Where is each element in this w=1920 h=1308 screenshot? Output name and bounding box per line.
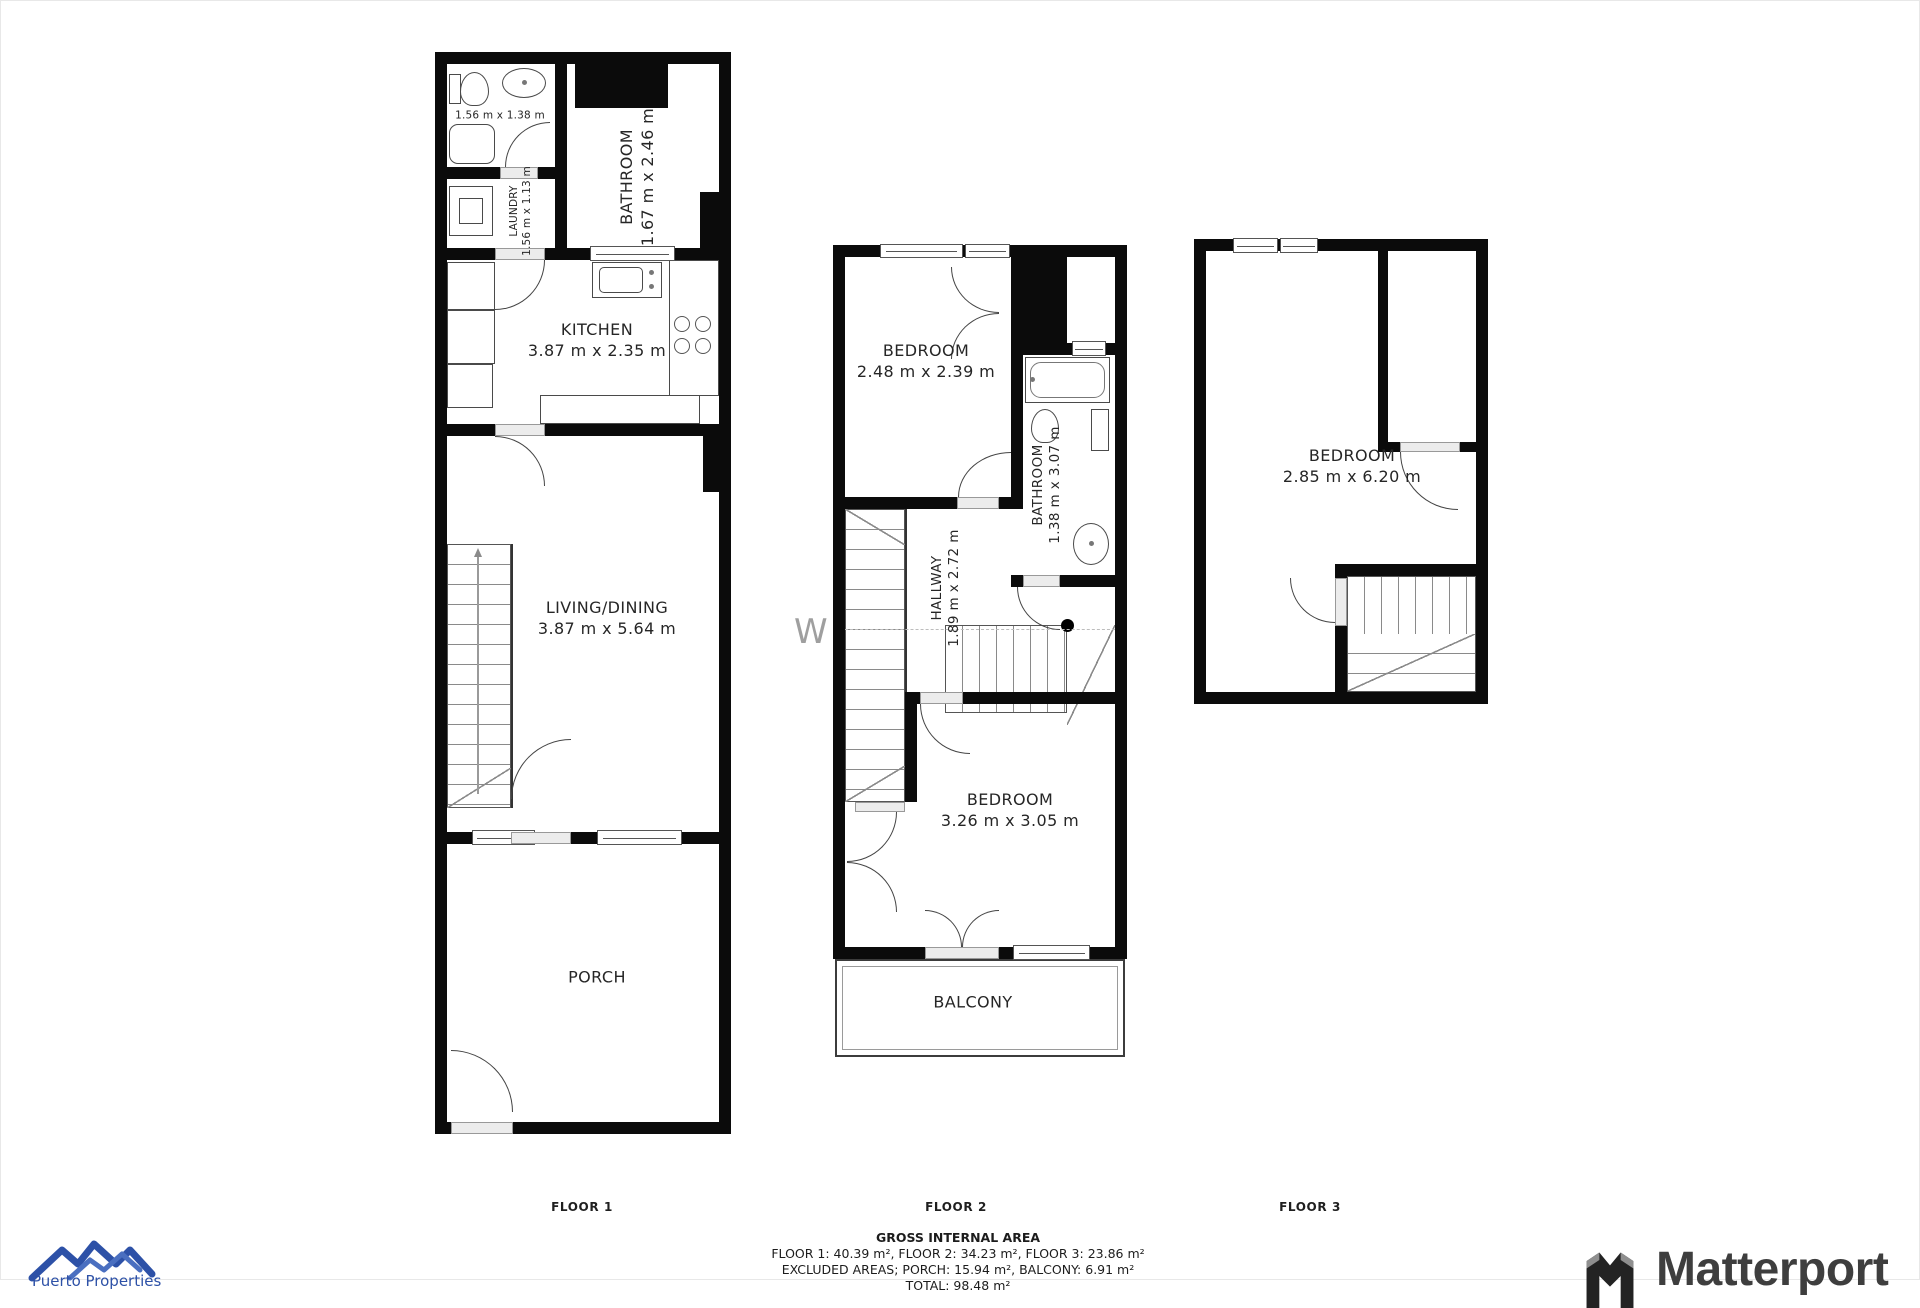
room-name: BEDROOM (967, 789, 1053, 810)
bathtub-icon (1025, 357, 1110, 403)
wall (703, 436, 719, 492)
door-arc (920, 704, 970, 754)
window (1072, 341, 1106, 356)
toilet-icon (460, 72, 489, 106)
agency-logo: Puerto Properties (26, 1236, 196, 1296)
stair-up-arrow-icon (474, 548, 482, 557)
watermark-text: W (794, 612, 828, 652)
room-label: PORCH (568, 967, 626, 988)
room-dims: 3.26 m x 3.05 m (941, 810, 1079, 831)
stair-winder-line (1348, 634, 1475, 691)
matterport-mark-icon (1582, 1244, 1638, 1308)
wall (833, 245, 845, 959)
stair-winder-line (1067, 625, 1115, 725)
stair-treads (1348, 577, 1475, 634)
room-name: LIVING/DINING (546, 597, 668, 618)
summary-total: TOTAL: 98.48 m² (771, 1278, 1144, 1294)
window (1013, 945, 1090, 960)
summary-excluded: EXCLUDED AREAS; PORCH: 15.94 m², BALCONY… (771, 1262, 1144, 1278)
wall (555, 64, 567, 248)
window (965, 244, 1010, 258)
wall (1011, 257, 1023, 509)
floor3-caption: FLOOR 3 (1279, 1200, 1341, 1214)
room-dims: 2.48 m x 2.39 m (857, 361, 995, 382)
closet-door-arc (847, 812, 897, 862)
room-name: BALCONY (933, 992, 1012, 1013)
faucet-dot-icon (649, 270, 654, 275)
faucet-dot-icon (1089, 541, 1094, 546)
room-dims: 3.87 m x 5.64 m (538, 618, 676, 639)
stove-burner-icon (695, 338, 711, 354)
wall (905, 692, 917, 802)
room-label: BEDROOM 2.48 m x 2.39 m (857, 340, 995, 382)
room-name: BEDROOM (883, 340, 969, 361)
floor3-plan: BEDROOM 2.85 m x 6.20 m (1194, 239, 1488, 704)
wall (1335, 564, 1347, 578)
room-label: BEDROOM 2.85 m x 6.20 m (1283, 445, 1421, 487)
shower-tray-icon (449, 124, 495, 164)
stair-winder-line (845, 509, 905, 545)
summary-title: GROSS INTERNAL AREA (771, 1230, 1144, 1246)
cabinet-icon (447, 310, 495, 364)
faucet-dot-icon (1030, 377, 1035, 382)
wall (447, 248, 719, 260)
door-arc (958, 452, 1011, 497)
window (590, 246, 675, 261)
stair-rail (511, 544, 513, 808)
wall (1023, 257, 1067, 355)
floorplan-page: 1.56 m x 1.38 m LAUNDRY 1.56 m x 1.13 m … (0, 0, 1920, 1280)
staircase (1347, 576, 1476, 692)
room-label: 1.56 m x 1.38 m (455, 110, 545, 123)
door-sill (1023, 575, 1060, 587)
room-name: BEDROOM (1309, 445, 1395, 466)
faucet-dot-icon (522, 80, 527, 85)
door-sill (495, 424, 545, 436)
stair-direction-line (477, 556, 479, 794)
floor1-caption: FLOOR 1 (551, 1200, 613, 1214)
door-arc (1017, 587, 1060, 630)
window (1233, 238, 1278, 253)
stair-winder-line (447, 768, 511, 808)
door-arc (505, 122, 550, 167)
washing-machine-door-icon (459, 198, 483, 224)
room-dims: 1.56 m x 1.38 m (455, 110, 545, 123)
door-arc (962, 910, 999, 947)
door-arc (451, 1050, 513, 1112)
window (880, 244, 963, 258)
staircase (845, 509, 905, 802)
wall (1335, 626, 1347, 692)
room-name: BATHROOM (1030, 444, 1047, 525)
kitchen-sink-basin-icon (599, 267, 643, 293)
floor2-caption: FLOOR 2 (925, 1200, 987, 1214)
room-dims: 2.85 m x 6.20 m (1283, 466, 1421, 487)
room-name: KITCHEN (561, 319, 633, 340)
room-label: HALLWAY 1.89 m x 2.72 m (929, 529, 963, 647)
floor1-plan: 1.56 m x 1.38 m LAUNDRY 1.56 m x 1.13 m … (435, 52, 731, 1134)
room-label: BATHROOM 1.38 m x 3.07 m (1030, 426, 1064, 544)
door-sill (451, 1122, 513, 1134)
room-dims: 3.87 m x 2.35 m (528, 340, 666, 361)
stove-burner-icon (695, 316, 711, 332)
shelf-icon (1091, 409, 1109, 451)
door-sill (957, 497, 999, 509)
room-name: LAUNDRY (508, 185, 521, 236)
window (597, 830, 682, 845)
room-label: LIVING/DINING 3.87 m x 5.64 m (538, 597, 676, 639)
island-counter-icon (540, 395, 700, 424)
wall (575, 64, 668, 108)
closet-door-arc (847, 862, 897, 912)
door-sill (855, 802, 905, 812)
stove-burner-icon (674, 338, 690, 354)
door-sill (925, 947, 999, 959)
door-sill (511, 832, 571, 844)
room-name: BATHROOM (616, 129, 637, 225)
agency-name: Puerto Properties (32, 1272, 161, 1290)
room-label: BEDROOM 3.26 m x 3.05 m (941, 789, 1079, 831)
room-name: PORCH (568, 967, 626, 988)
room-label: LAUNDRY 1.56 m x 1.13 m (508, 166, 534, 256)
summary-floors: FLOOR 1: 40.39 m², FLOOR 2: 34.23 m², FL… (771, 1246, 1144, 1262)
area-summary: GROSS INTERNAL AREA FLOOR 1: 40.39 m², F… (771, 1230, 1144, 1294)
door-arc (495, 436, 545, 486)
room-dims: 1.67 m x 2.46 m (637, 108, 658, 246)
cabinet-icon (447, 364, 493, 408)
stove-burner-icon (674, 316, 690, 332)
wall (1115, 245, 1127, 959)
closet-door-arc (951, 267, 999, 313)
floor2-plan: BEDROOM 2.48 m x 2.39 m BATHROOM 1.38 m … (833, 245, 1127, 1059)
door-sill (920, 692, 963, 704)
cabinet-icon (447, 262, 495, 310)
room-label: BALCONY (933, 992, 1012, 1013)
room-name: HALLWAY (929, 555, 946, 620)
wall (1460, 442, 1476, 452)
wall (447, 424, 719, 436)
stair-guide-line (845, 629, 1115, 630)
matterport-wordmark: Matterport (1656, 1242, 1888, 1297)
room-label: KITCHEN 3.87 m x 2.35 m (528, 319, 666, 361)
window (1280, 238, 1318, 253)
wall (1335, 564, 1476, 576)
room-dims: 1.38 m x 3.07 m (1047, 426, 1064, 544)
room-label: BATHROOM 1.67 m x 2.46 m (616, 108, 658, 246)
room-dims: 1.89 m x 2.72 m (946, 529, 963, 647)
wall (1378, 251, 1388, 442)
door-arc (495, 260, 545, 310)
door-arc (511, 739, 571, 799)
room-dims: 1.56 m x 1.13 m (521, 166, 534, 256)
stair-winder-line (845, 766, 905, 802)
door-sill (1335, 578, 1347, 626)
door-arc (925, 910, 962, 947)
faucet-dot-icon (649, 284, 654, 289)
door-arc (1290, 578, 1335, 623)
